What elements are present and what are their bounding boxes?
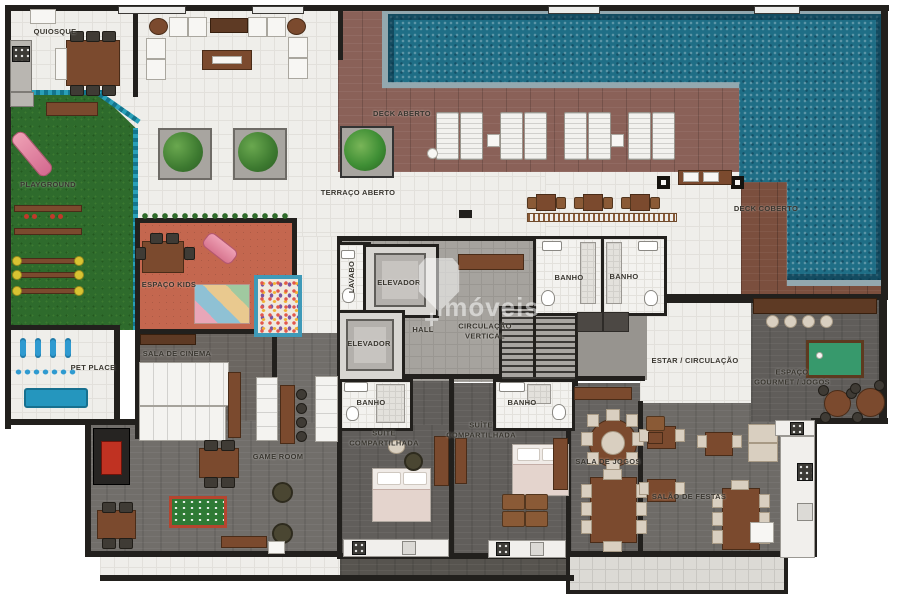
label-hall: HALL — [412, 325, 433, 335]
label-espaco_kids: ESPAÇO KIDS — [142, 280, 196, 290]
label-circulacao_vertical: CIRCULAÇÃO VERTICAL — [458, 321, 511, 341]
label-playground: PLAYGROUND — [20, 180, 76, 190]
label-sala_de_cinema: SALA DE CINEMA — [143, 349, 212, 359]
label-espaco_gourmet_jogos: ESPAÇO GOURMET / JOGOS — [754, 367, 830, 387]
floor-plan: QUIOSQUEPLAYGROUNDPET PLACEESPAÇO KIDSSA… — [0, 0, 900, 596]
label-deck_coberto: DECK COBERTO — [734, 204, 798, 214]
label-banho_suite_1: BANHO — [357, 398, 386, 408]
label-elevador_2: ELEVADOR — [347, 339, 391, 349]
label-pet_place: PET PLACE — [71, 363, 116, 373]
labels-layer: QUIOSQUEPLAYGROUNDPET PLACEESPAÇO KIDSSA… — [0, 0, 900, 596]
label-estar_circulacao: ESTAR / CIRCULAÇÃO — [652, 356, 739, 366]
label-deck_aberto: DECK ABERTO — [373, 109, 431, 119]
label-banho_suite_2: BANHO — [508, 398, 537, 408]
label-game_room: GAME ROOM — [253, 452, 304, 462]
label-suite_compartilhada_2: SUÍTE COMPARTILHADA — [446, 420, 516, 440]
label-elevador_1: ELEVADOR — [377, 278, 421, 288]
label-terraco_aberto: TERRAÇO ABERTO — [321, 188, 396, 198]
label-sala_de_jogos: SALA DE JOGOS — [575, 457, 640, 467]
label-banho_central_1: BANHO — [555, 273, 584, 283]
label-banho_central_2: BANHO — [610, 272, 639, 282]
label-salao_de_festas: SALÃO DE FESTAS — [652, 492, 726, 502]
label-quiosque: QUIOSQUE — [34, 27, 77, 37]
label-suite_compartilhada_1: SUÍTE COMPARTILHADA — [349, 428, 419, 448]
label-lavabo: LAVABO — [347, 261, 357, 293]
